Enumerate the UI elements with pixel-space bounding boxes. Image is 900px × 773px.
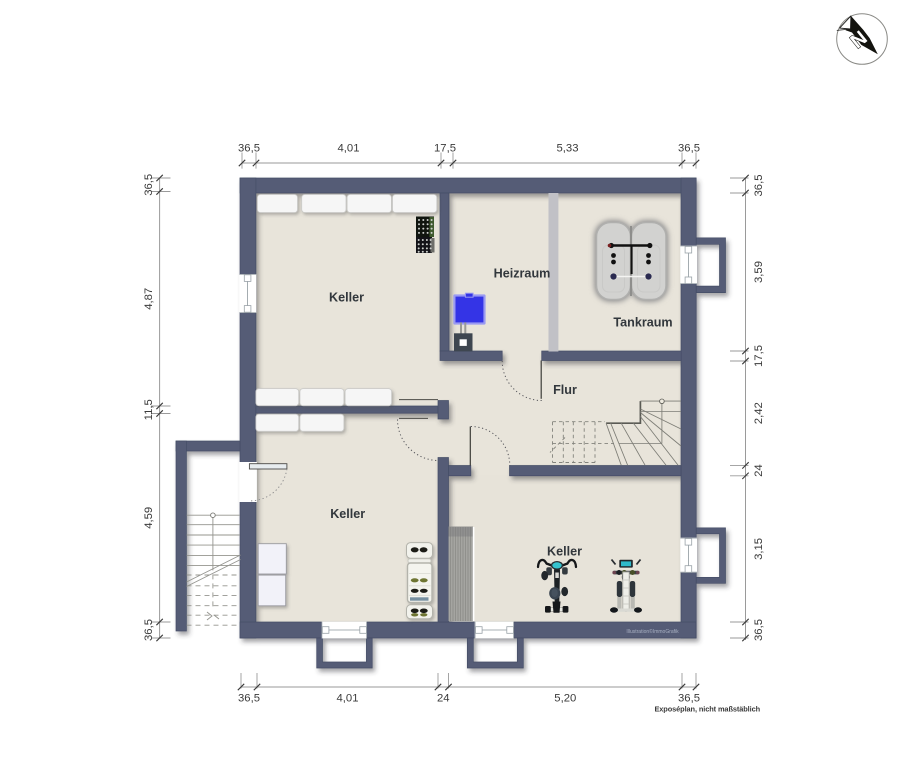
svg-text:Heizraum: Heizraum — [494, 267, 551, 281]
svg-text:5,20: 5,20 — [554, 693, 576, 705]
svg-text:Keller: Keller — [547, 545, 582, 559]
svg-text:36,5: 36,5 — [238, 143, 260, 155]
svg-text:36,5: 36,5 — [143, 619, 155, 641]
svg-text:5,33: 5,33 — [557, 143, 579, 155]
svg-text:4,87: 4,87 — [143, 288, 155, 310]
svg-text:17,5: 17,5 — [753, 345, 765, 367]
svg-text:24: 24 — [437, 693, 450, 705]
svg-text:4,01: 4,01 — [337, 693, 359, 705]
svg-text:11,5: 11,5 — [143, 399, 155, 420]
svg-text:3,59: 3,59 — [753, 261, 765, 283]
svg-text:Tankraum: Tankraum — [613, 316, 672, 330]
svg-text:36,5: 36,5 — [678, 693, 700, 705]
svg-text:Illustration©ImmoGrafik: Illustration©ImmoGrafik — [626, 628, 679, 635]
svg-text:Keller: Keller — [330, 507, 365, 521]
svg-text:3,15: 3,15 — [753, 538, 765, 560]
svg-text:Keller: Keller — [329, 291, 364, 305]
svg-text:4,59: 4,59 — [143, 507, 155, 529]
svg-text:36,5: 36,5 — [753, 619, 765, 641]
svg-text:4,01: 4,01 — [338, 143, 360, 155]
svg-text:36,5: 36,5 — [753, 175, 765, 197]
svg-text:17,5: 17,5 — [434, 143, 456, 155]
svg-text:24: 24 — [753, 464, 765, 477]
svg-text:Flur: Flur — [553, 383, 577, 397]
svg-text:36,5: 36,5 — [238, 693, 260, 705]
svg-text:2,42: 2,42 — [753, 402, 765, 424]
svg-text:Exposéplan, nicht maßstäblich: Exposéplan, nicht maßstäblich — [654, 705, 760, 714]
svg-text:36,5: 36,5 — [143, 174, 155, 196]
svg-text:36,5: 36,5 — [678, 143, 700, 155]
